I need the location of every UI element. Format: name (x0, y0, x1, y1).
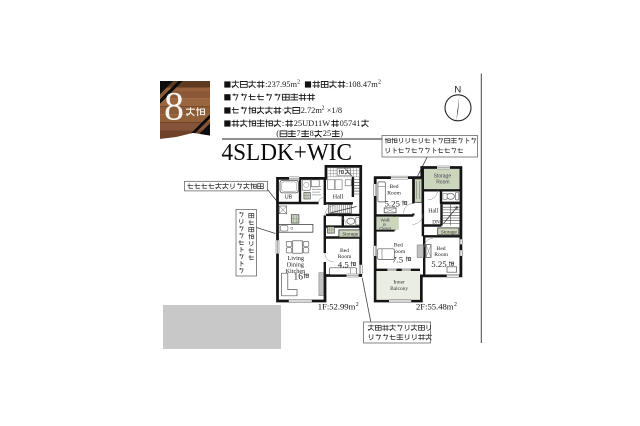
svg-text:5.25: 5.25 (385, 199, 401, 209)
svg-text:Closet: Closet (379, 226, 392, 231)
svg-text:2: 2 (356, 302, 359, 308)
svg-text:Inner: Inner (393, 279, 405, 285)
svg-text:Bed: Bed (437, 246, 446, 252)
svg-text:Storage: Storage (342, 231, 359, 236)
svg-text:Storage: Storage (441, 229, 458, 234)
svg-text:2: 2 (454, 302, 457, 308)
svg-text:Bed: Bed (390, 184, 399, 190)
svg-text:×1/8: ×1/8 (327, 106, 342, 115)
svg-text:2: 2 (378, 80, 381, 86)
svg-text:25: 25 (323, 129, 331, 138)
svg-text:Hall: Hall (428, 208, 438, 214)
svg-text:8: 8 (310, 129, 314, 138)
svg-text:): ) (340, 129, 343, 138)
svg-text:4SLDK+WIC: 4SLDK+WIC (222, 139, 353, 166)
svg-text:(: ( (276, 129, 279, 138)
svg-text:Room: Room (434, 252, 448, 258)
svg-text:2: 2 (322, 106, 325, 112)
svg-text:2F:55.48m: 2F:55.48m (416, 301, 454, 311)
svg-text:1F:52.99m: 1F:52.99m (318, 301, 356, 311)
svg-text:25UD11W: 25UD11W (294, 119, 331, 128)
svg-text:2.72m: 2.72m (301, 106, 323, 115)
svg-text:Room: Room (436, 180, 449, 186)
svg-text:Storage: Storage (434, 173, 452, 179)
svg-text:05741: 05741 (340, 119, 361, 128)
svg-text:UB: UB (285, 194, 293, 200)
svg-text::108.47m: :108.47m (346, 80, 378, 89)
svg-text:5.25: 5.25 (431, 259, 447, 269)
svg-text:8: 8 (164, 84, 184, 129)
svg-text:N: N (454, 84, 461, 95)
svg-text:DN: DN (432, 220, 440, 226)
svg-text::: : (282, 119, 284, 128)
svg-text:Balcony: Balcony (390, 286, 408, 292)
svg-text:·: · (282, 106, 285, 115)
svg-text:Bed: Bed (394, 243, 403, 249)
svg-text:Room: Room (387, 190, 401, 196)
svg-text::237.95m: :237.95m (265, 80, 297, 89)
svg-text:7: 7 (296, 129, 300, 138)
svg-text:2: 2 (297, 80, 300, 86)
svg-text:Hall: Hall (333, 194, 344, 200)
svg-text:16: 16 (294, 273, 304, 283)
